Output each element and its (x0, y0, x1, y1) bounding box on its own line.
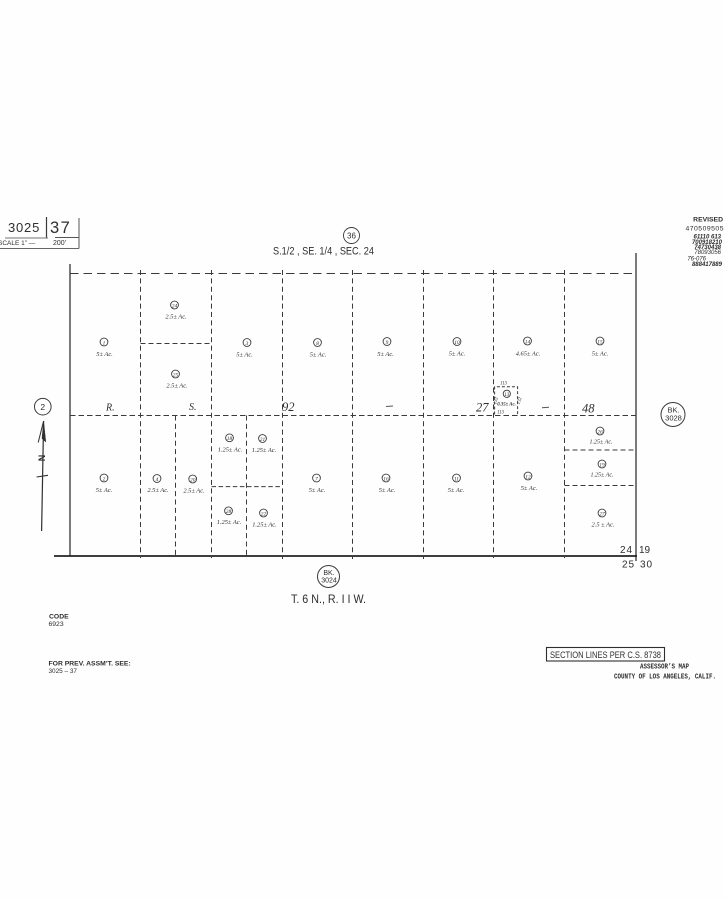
svg-text:28: 28 (226, 509, 232, 515)
svg-text:1.25± Ac.: 1.25± Ac. (252, 522, 277, 529)
svg-text:15: 15 (597, 339, 603, 345)
svg-text:5± Ac.: 5± Ac. (377, 351, 394, 358)
svg-text:REVISED: REVISED (693, 217, 723, 224)
svg-text:1.25± Ac.: 1.25± Ac. (252, 447, 277, 454)
svg-text:10: 10 (454, 340, 460, 346)
svg-text:SECTION LINES PER C.S. 8738: SECTION LINES PER C.S. 8738 (550, 650, 661, 661)
svg-text:27: 27 (476, 401, 489, 415)
svg-text:0.35± Ac.: 0.35± Ac. (497, 403, 516, 408)
svg-text:5± Ac.: 5± Ac. (448, 487, 465, 494)
svg-text:470509505: 470509505 (685, 226, 724, 233)
svg-text:18: 18 (227, 436, 233, 442)
svg-text:1: 1 (103, 340, 106, 346)
svg-text:5± Ac.: 5± Ac. (379, 487, 396, 494)
svg-text:13: 13 (504, 393, 510, 398)
svg-text:22: 22 (261, 511, 267, 517)
svg-text:3: 3 (245, 341, 249, 347)
svg-text:113: 113 (497, 410, 504, 415)
svg-text:36: 36 (347, 232, 356, 241)
svg-text:16: 16 (383, 476, 389, 482)
svg-text:24: 24 (620, 545, 633, 556)
svg-text:200’: 200’ (53, 240, 67, 247)
svg-text:CODE: CODE (49, 614, 69, 621)
svg-text:25: 25 (173, 372, 179, 378)
svg-text:132: 132 (517, 396, 524, 405)
svg-text:4.65± Ac.: 4.65± Ac. (516, 351, 541, 358)
svg-text:3024: 3024 (321, 577, 337, 584)
svg-text:2.5± Ac.: 2.5± Ac. (166, 383, 188, 390)
svg-text:S.: S. (189, 402, 197, 413)
svg-text:5± Ac.: 5± Ac. (96, 487, 113, 494)
svg-text:5± Ac.: 5± Ac. (310, 352, 327, 359)
svg-text:3025 – 37: 3025 – 37 (49, 668, 78, 675)
svg-text:5± Ac.: 5± Ac. (236, 352, 253, 359)
svg-text:1.25± Ac.: 1.25± Ac. (218, 447, 243, 454)
svg-text:COUNTY OF LOS ANGELES, CALIF.: COUNTY OF LOS ANGELES, CALIF. (614, 674, 716, 682)
svg-text:2.5± Ac.: 2.5± Ac. (165, 314, 187, 321)
svg-text:11: 11 (454, 476, 459, 482)
svg-text:2: 2 (40, 402, 45, 412)
svg-text:1.25± Ac.: 1.25± Ac. (590, 473, 613, 479)
svg-text:19: 19 (599, 462, 605, 468)
svg-text:24: 24 (172, 303, 178, 309)
svg-text:78093056: 78093056 (694, 250, 721, 256)
svg-text:1.25± Ac.: 1.25± Ac. (217, 519, 242, 526)
svg-text:SCALE 1” —: SCALE 1” — (0, 240, 36, 247)
svg-text:5± Ac.: 5± Ac. (96, 351, 113, 358)
svg-text:30: 30 (640, 560, 653, 571)
svg-text:5± Ac.: 5± Ac. (309, 487, 326, 494)
svg-text:14: 14 (525, 339, 531, 345)
svg-text:T. 6 N., R. I I W.: T. 6 N., R. I I W. (291, 594, 366, 606)
svg-text:27: 27 (599, 511, 605, 517)
svg-text:92: 92 (282, 400, 295, 414)
svg-text:21: 21 (260, 437, 266, 443)
svg-text:BK.: BK. (323, 570, 334, 577)
svg-text:19: 19 (639, 545, 651, 556)
svg-text:888417889: 888417889 (692, 262, 723, 268)
svg-text:5± Ac.: 5± Ac. (449, 351, 466, 358)
svg-text:12: 12 (525, 474, 531, 480)
svg-text:ASSESSOR’S MAP: ASSESSOR’S MAP (640, 664, 689, 672)
svg-text:113: 113 (500, 381, 507, 386)
svg-text:2.5± Ac.: 2.5± Ac. (183, 488, 205, 495)
svg-text:R.: R. (105, 403, 115, 414)
svg-text:8: 8 (316, 341, 319, 347)
svg-text:37: 37 (50, 219, 71, 237)
svg-text:26: 26 (597, 429, 603, 435)
svg-text:FOR PREV. ASSM’T. SEE:: FOR PREV. ASSM’T. SEE: (49, 661, 131, 668)
svg-text:5± Ac.: 5± Ac. (521, 485, 538, 492)
svg-text:4: 4 (156, 477, 159, 483)
svg-text:3028: 3028 (665, 414, 682, 423)
svg-text:9: 9 (386, 340, 389, 346)
svg-text:2.5± Ac.: 2.5± Ac. (147, 487, 169, 494)
svg-text:2.5 ± Ac.: 2.5 ± Ac. (592, 522, 615, 529)
svg-text:20: 20 (190, 477, 196, 483)
svg-text:7: 7 (315, 476, 318, 482)
svg-text:S.1/2 , SE. 1/4 , SEC. 24: S.1/2 , SE. 1/4 , SEC. 24 (273, 246, 374, 258)
svg-text:48: 48 (582, 402, 595, 416)
svg-text:2: 2 (103, 476, 106, 482)
svg-text:25: 25 (622, 560, 635, 571)
svg-text:N: N (37, 455, 47, 462)
svg-text:5± Ac.: 5± Ac. (592, 351, 609, 358)
svg-text:6923: 6923 (49, 621, 64, 628)
svg-text:3025: 3025 (8, 220, 40, 235)
svg-text:1.25± Ac.: 1.25± Ac. (589, 440, 612, 446)
